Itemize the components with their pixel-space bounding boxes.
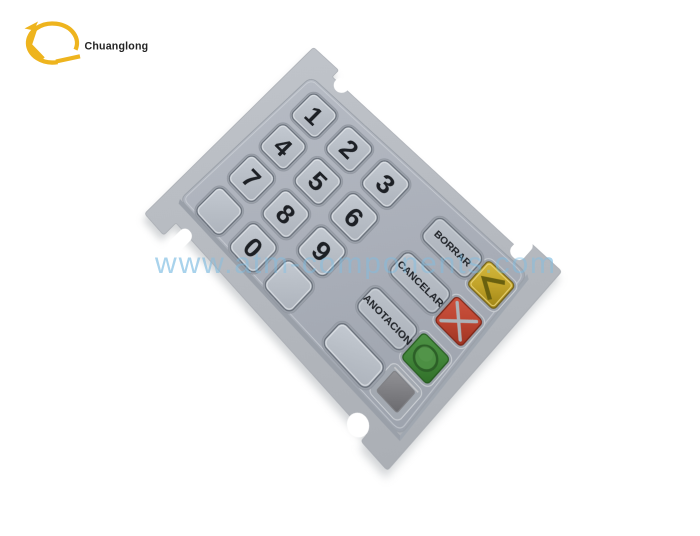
svg-text:Chuanglong: Chuanglong [85,41,149,53]
